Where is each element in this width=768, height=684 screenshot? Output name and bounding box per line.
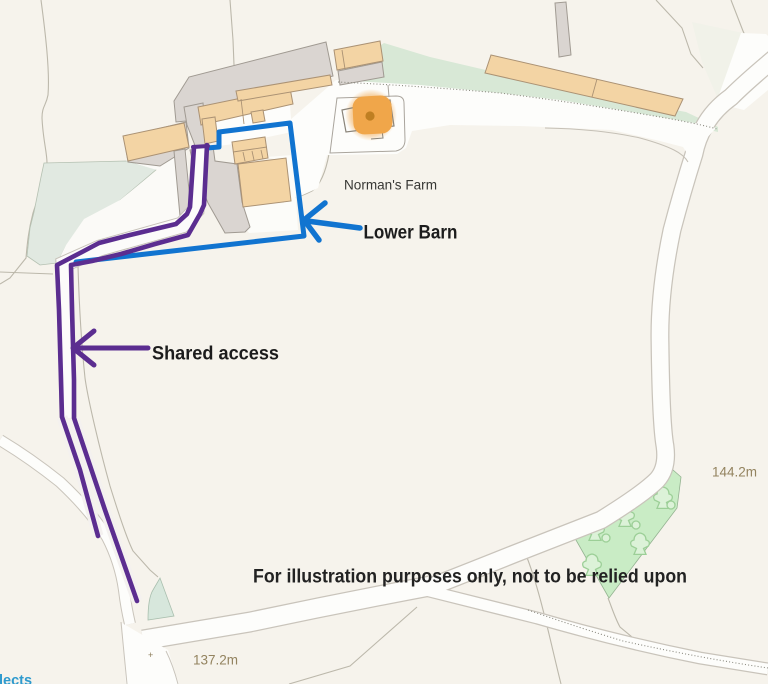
svg-text:Shared access: Shared access: [152, 343, 279, 365]
svg-text:Norman's Farm: Norman's Farm: [344, 177, 437, 193]
svg-text:Lower Barn: Lower Barn: [364, 222, 458, 244]
svg-text:For illustration purposes only: For illustration purposes only, not to b…: [253, 567, 687, 588]
svg-text:137.2m: 137.2m: [193, 653, 238, 668]
svg-text:144.2m: 144.2m: [712, 465, 757, 480]
svg-text:lects: lects: [0, 673, 32, 684]
svg-text:+: +: [148, 650, 153, 660]
